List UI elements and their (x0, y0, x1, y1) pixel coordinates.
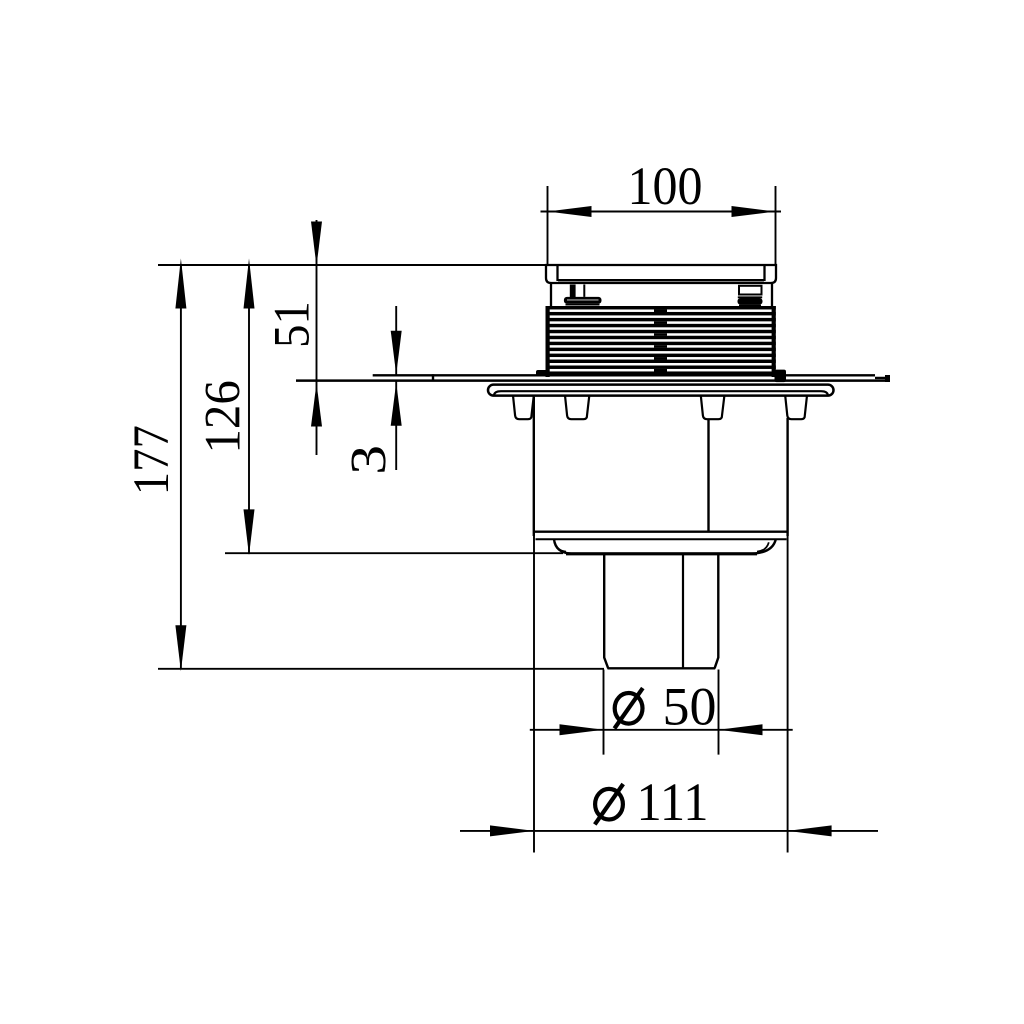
svg-text:177: 177 (124, 425, 180, 495)
svg-text:100: 100 (628, 156, 703, 216)
svg-text:3: 3 (342, 445, 398, 475)
svg-text:50: 50 (663, 677, 717, 737)
svg-text:126: 126 (196, 380, 252, 453)
svg-text:51: 51 (265, 301, 321, 348)
svg-text:111: 111 (637, 772, 709, 832)
